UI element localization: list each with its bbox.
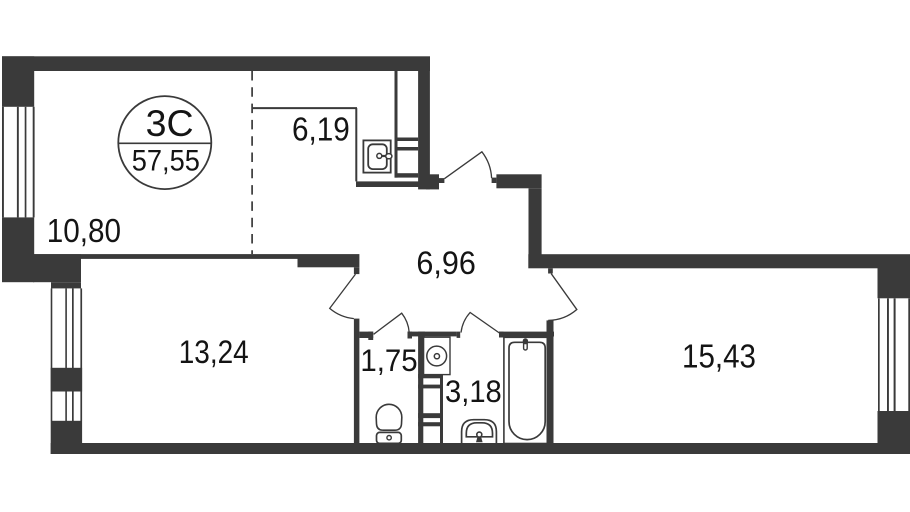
svg-text:6,96: 6,96	[416, 244, 475, 281]
svg-text:6,19: 6,19	[292, 111, 350, 148]
svg-text:13,24: 13,24	[179, 336, 249, 371]
svg-text:1,75: 1,75	[360, 343, 417, 378]
svg-text:15,43: 15,43	[682, 337, 756, 375]
svg-text:3C: 3C	[146, 102, 194, 144]
svg-text:3,18: 3,18	[445, 374, 502, 409]
svg-text:10,80: 10,80	[47, 213, 121, 250]
svg-text:57,55: 57,55	[132, 144, 200, 177]
